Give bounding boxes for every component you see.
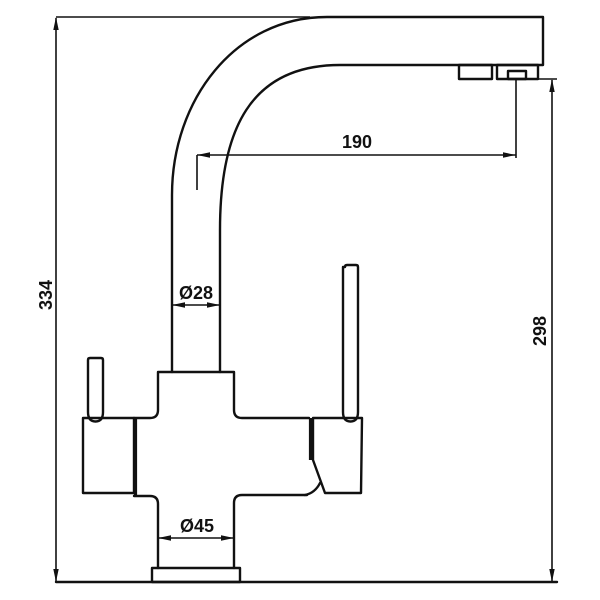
arrowhead-down: [549, 569, 554, 582]
dim-riser-diameter-label: Ø28: [179, 283, 213, 303]
dim-spout-reach: 190: [197, 79, 516, 190]
dim-base-diameter: Ø45: [158, 516, 234, 541]
base-flange: [152, 568, 240, 582]
dim-base-diameter-label: Ø45: [180, 516, 214, 536]
right-handle-base-arc: [305, 483, 320, 495]
faucet-drawing: 334 298 190: [0, 0, 600, 600]
left-handle-lever: [88, 358, 103, 422]
arrowhead-left: [158, 535, 171, 540]
dim-outlet-height-label: 298: [530, 316, 550, 346]
arrowhead-right: [503, 152, 516, 157]
dim-total-height-label: 334: [36, 280, 56, 310]
dim-riser-diameter: Ø28: [172, 283, 220, 308]
left-handle: [83, 358, 136, 495]
right-handle: [305, 265, 362, 495]
arrowhead-right: [207, 302, 220, 307]
aerator-block-left: [459, 65, 492, 79]
arrowhead-up: [549, 79, 554, 92]
arrowhead-up: [53, 17, 58, 30]
aerator: [459, 65, 538, 79]
right-handle-lever: [343, 265, 358, 422]
arrowhead-left: [197, 152, 210, 157]
arrowhead-down: [53, 569, 58, 582]
arrowhead-right: [221, 535, 234, 540]
right-handle-body: [313, 418, 362, 493]
left-handle-body: [83, 418, 134, 493]
arrowhead-left: [172, 302, 185, 307]
technical-drawing-canvas: 334 298 190: [0, 0, 600, 600]
dim-outlet-height: 298: [530, 79, 557, 582]
dim-spout-reach-label: 190: [342, 132, 372, 152]
aerator-nozzle: [508, 71, 526, 79]
